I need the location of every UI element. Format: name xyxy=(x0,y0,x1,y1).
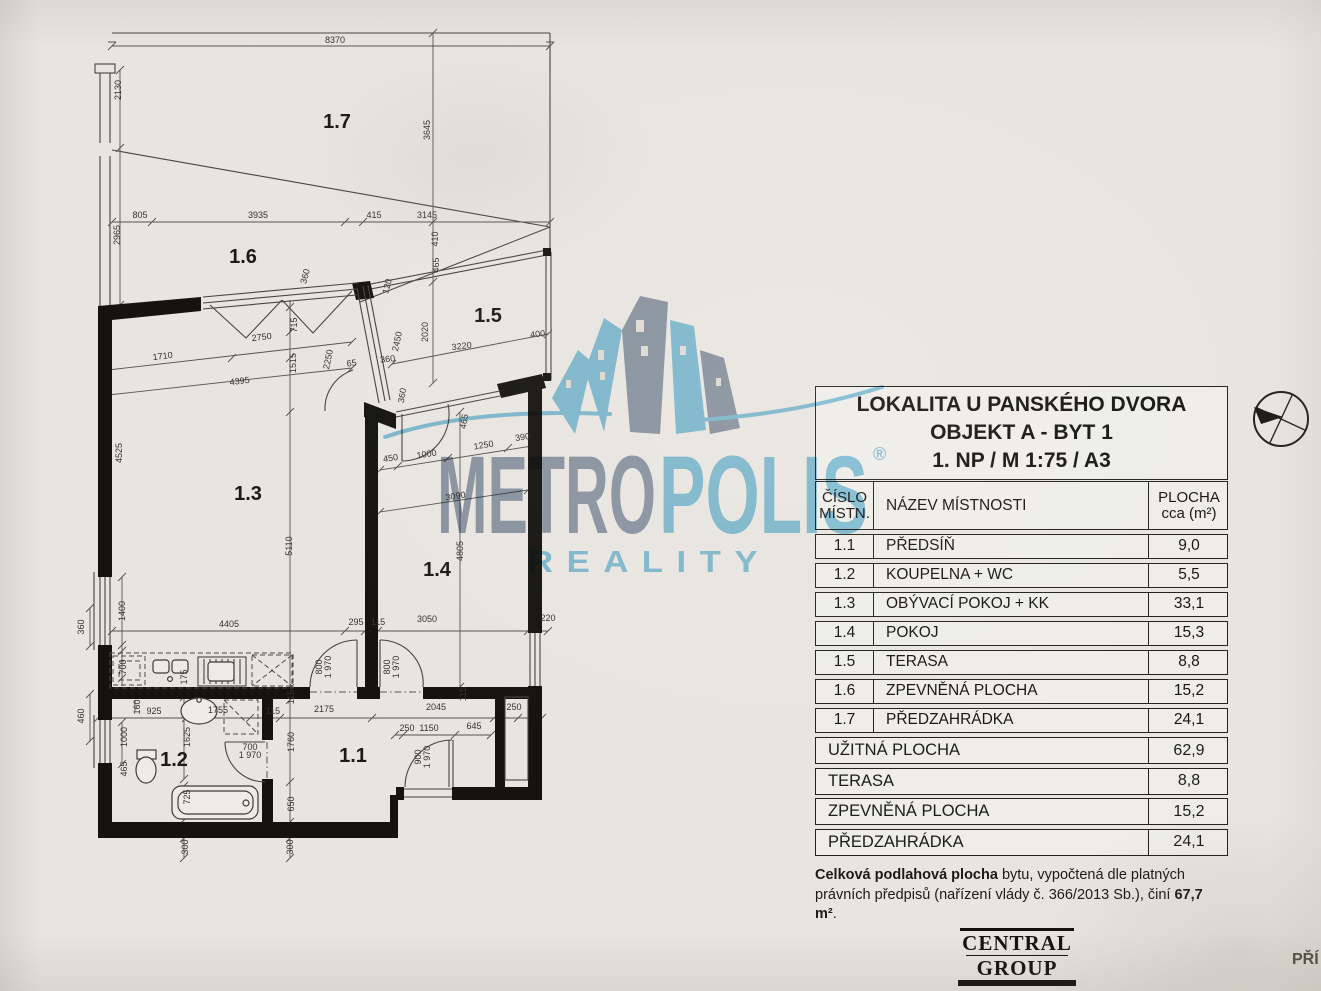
title-line-2: OBJEKT A - BYT 1 xyxy=(816,419,1227,447)
corner-text: PŘÍ xyxy=(1292,951,1319,969)
table-row: 1.4 POKOJ 15,3 xyxy=(815,621,1228,647)
room-area: 24,1 xyxy=(1148,709,1229,733)
room-name: POKOJ xyxy=(874,622,1148,646)
header-room-area: PLOCHA cca (m²) xyxy=(1148,482,1229,529)
room-name: ZPEVNĚNÁ PLOCHA xyxy=(874,680,1148,704)
scanned-floorplan-page: { "meta": { "paper": "#e8e5e0", "ink": "… xyxy=(0,0,1321,991)
table-row: 1.6 ZPEVNĚNÁ PLOCHA 15,2 xyxy=(815,679,1228,705)
room-name: KOUPELNA + WC xyxy=(874,564,1148,588)
room-number: 1.3 xyxy=(816,593,874,617)
room-area: 15,2 xyxy=(1148,680,1229,704)
summary-name: UŽITNÁ PLOCHA xyxy=(816,738,1148,763)
room-area: 8,8 xyxy=(1148,651,1229,675)
room-number: 1.6 xyxy=(816,680,874,704)
summary-area: 15,2 xyxy=(1148,799,1229,824)
room-name: PŘEDZAHRÁDKA xyxy=(874,709,1148,733)
summary-area: 8,8 xyxy=(1148,769,1229,794)
note-period: . xyxy=(833,906,837,922)
room-number: 1.7 xyxy=(816,709,874,733)
room-table: ČÍSLO MÍSTN. NÁZEV MÍSTNOSTI PLOCHA cca … xyxy=(815,481,1228,737)
area-note: Celková podlahová plocha bytu, vypočtená… xyxy=(815,866,1211,925)
group-text: GROUP xyxy=(956,956,1078,980)
summary-name: ZPEVNĚNÁ PLOCHA xyxy=(816,799,1148,824)
header-room-name: NÁZEV MÍSTNOSTI xyxy=(874,482,1148,529)
summary-name: TERASA xyxy=(816,769,1148,794)
table-row: 1.5 TERASA 8,8 xyxy=(815,650,1228,676)
room-number: 1.1 xyxy=(816,535,874,559)
title-line-3: 1. NP / M 1:75 / A3 xyxy=(816,447,1227,475)
summary-row: ZPEVNĚNÁ PLOCHA 15,2 xyxy=(815,798,1228,825)
central-text: CENTRAL xyxy=(956,931,1078,955)
header-room-number: ČÍSLO MÍSTN. xyxy=(816,482,874,529)
central-group-logo: CENTRAL GROUP xyxy=(956,928,1078,986)
title-block: LOKALITA U PANSKÉHO DVORA OBJEKT A - BYT… xyxy=(815,386,1228,480)
table-row: 1.3 OBÝVACÍ POKOJ + KK 33,1 xyxy=(815,592,1228,618)
title-line-1: LOKALITA U PANSKÉHO DVORA xyxy=(816,391,1227,419)
summary-rows: UŽITNÁ PLOCHA 62,9 TERASA 8,8 ZPEVNĚNÁ P… xyxy=(815,737,1228,856)
room-area: 15,3 xyxy=(1148,622,1229,646)
room-number: 1.5 xyxy=(816,651,874,675)
summary-area: 24,1 xyxy=(1148,830,1229,855)
summary-table: UŽITNÁ PLOCHA 62,9 TERASA 8,8 ZPEVNĚNÁ P… xyxy=(815,737,1228,859)
logo-rule-bottom xyxy=(958,980,1076,986)
summary-name: PŘEDZAHRÁDKA xyxy=(816,830,1148,855)
room-number: 1.2 xyxy=(816,564,874,588)
summary-row: PŘEDZAHRÁDKA 24,1 xyxy=(815,829,1228,856)
table-row: 1.7 PŘEDZAHRÁDKA 24,1 xyxy=(815,708,1228,734)
room-area: 9,0 xyxy=(1148,535,1229,559)
room-rows: 1.1 PŘEDSÍŇ 9,0 1.2 KOUPELNA + WC 5,5 1.… xyxy=(815,534,1228,734)
room-number: 1.4 xyxy=(816,622,874,646)
summary-area: 62,9 xyxy=(1148,738,1229,763)
room-area: 33,1 xyxy=(1148,593,1229,617)
note-bold-lead: Celková podlahová plocha xyxy=(815,867,998,883)
room-name: TERASA xyxy=(874,651,1148,675)
table-header: ČÍSLO MÍSTN. NÁZEV MÍSTNOSTI PLOCHA cca … xyxy=(815,481,1228,530)
table-row: 1.2 KOUPELNA + WC 5,5 xyxy=(815,563,1228,589)
room-area: 5,5 xyxy=(1148,564,1229,588)
summary-row: UŽITNÁ PLOCHA 62,9 xyxy=(815,737,1228,764)
table-row: 1.1 PŘEDSÍŇ 9,0 xyxy=(815,534,1228,560)
room-name: PŘEDSÍŇ xyxy=(874,535,1148,559)
room-name: OBÝVACÍ POKOJ + KK xyxy=(874,593,1148,617)
summary-row: TERASA 8,8 xyxy=(815,768,1228,795)
